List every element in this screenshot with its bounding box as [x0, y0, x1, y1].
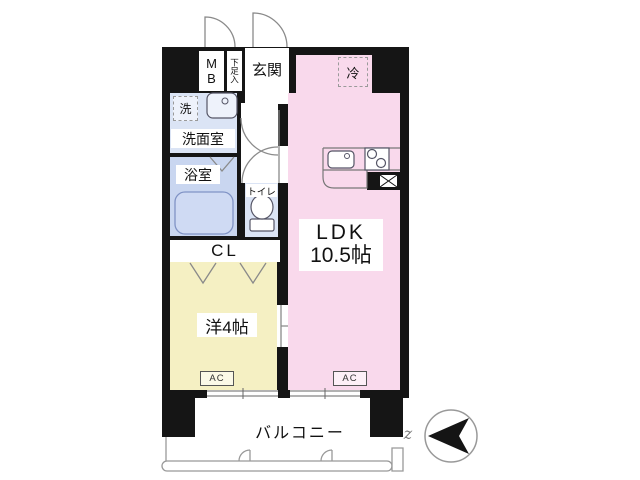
closet-label: CL — [170, 241, 280, 261]
toilet-label: トイレ — [246, 184, 277, 197]
ac-mark-ldk: AC — [333, 371, 367, 386]
ldk-label: LDK 10.5帖 — [299, 219, 383, 271]
window-opening-left — [207, 390, 278, 398]
window-opening-right — [290, 390, 360, 398]
sliding-door-opening — [277, 305, 288, 347]
washroom-label: 洗面室 — [171, 129, 235, 148]
ldk-name: LDK — [316, 222, 366, 245]
entrance-door-arc — [253, 13, 287, 47]
refrigerator-space: 冷 — [338, 57, 368, 87]
balcony-hatch-arc-left — [239, 450, 250, 461]
bathroom-label: 浴室 — [176, 165, 220, 184]
kitchen-duct-wall — [367, 172, 400, 190]
balcony-hatch-arc-right — [321, 450, 332, 461]
entrance-label: 玄関 — [247, 61, 287, 78]
ldk-size: 10.5帖 — [310, 245, 372, 268]
meter-box-door-arc — [205, 17, 235, 47]
ac-mark-western: AC — [200, 371, 234, 386]
break-mark: z — [399, 424, 417, 442]
hallway — [241, 103, 278, 183]
washing-machine-space: 洗 — [173, 96, 198, 121]
floor-plan: MB 下足入 玄関 冷 洗 洗面室 浴室 トイレ CL 洋4帖 LDK 10.5… — [0, 0, 640, 480]
meter-box-label: MB — [199, 53, 224, 89]
western-room-label: 洋4帖 — [197, 313, 257, 337]
north-arrow — [425, 410, 477, 462]
ldk-door-opening — [278, 146, 288, 183]
balcony-pillar-left — [162, 392, 195, 437]
balcony-label: バルコニー — [240, 422, 360, 440]
shoe-storage-label: 下足入 — [227, 52, 242, 90]
